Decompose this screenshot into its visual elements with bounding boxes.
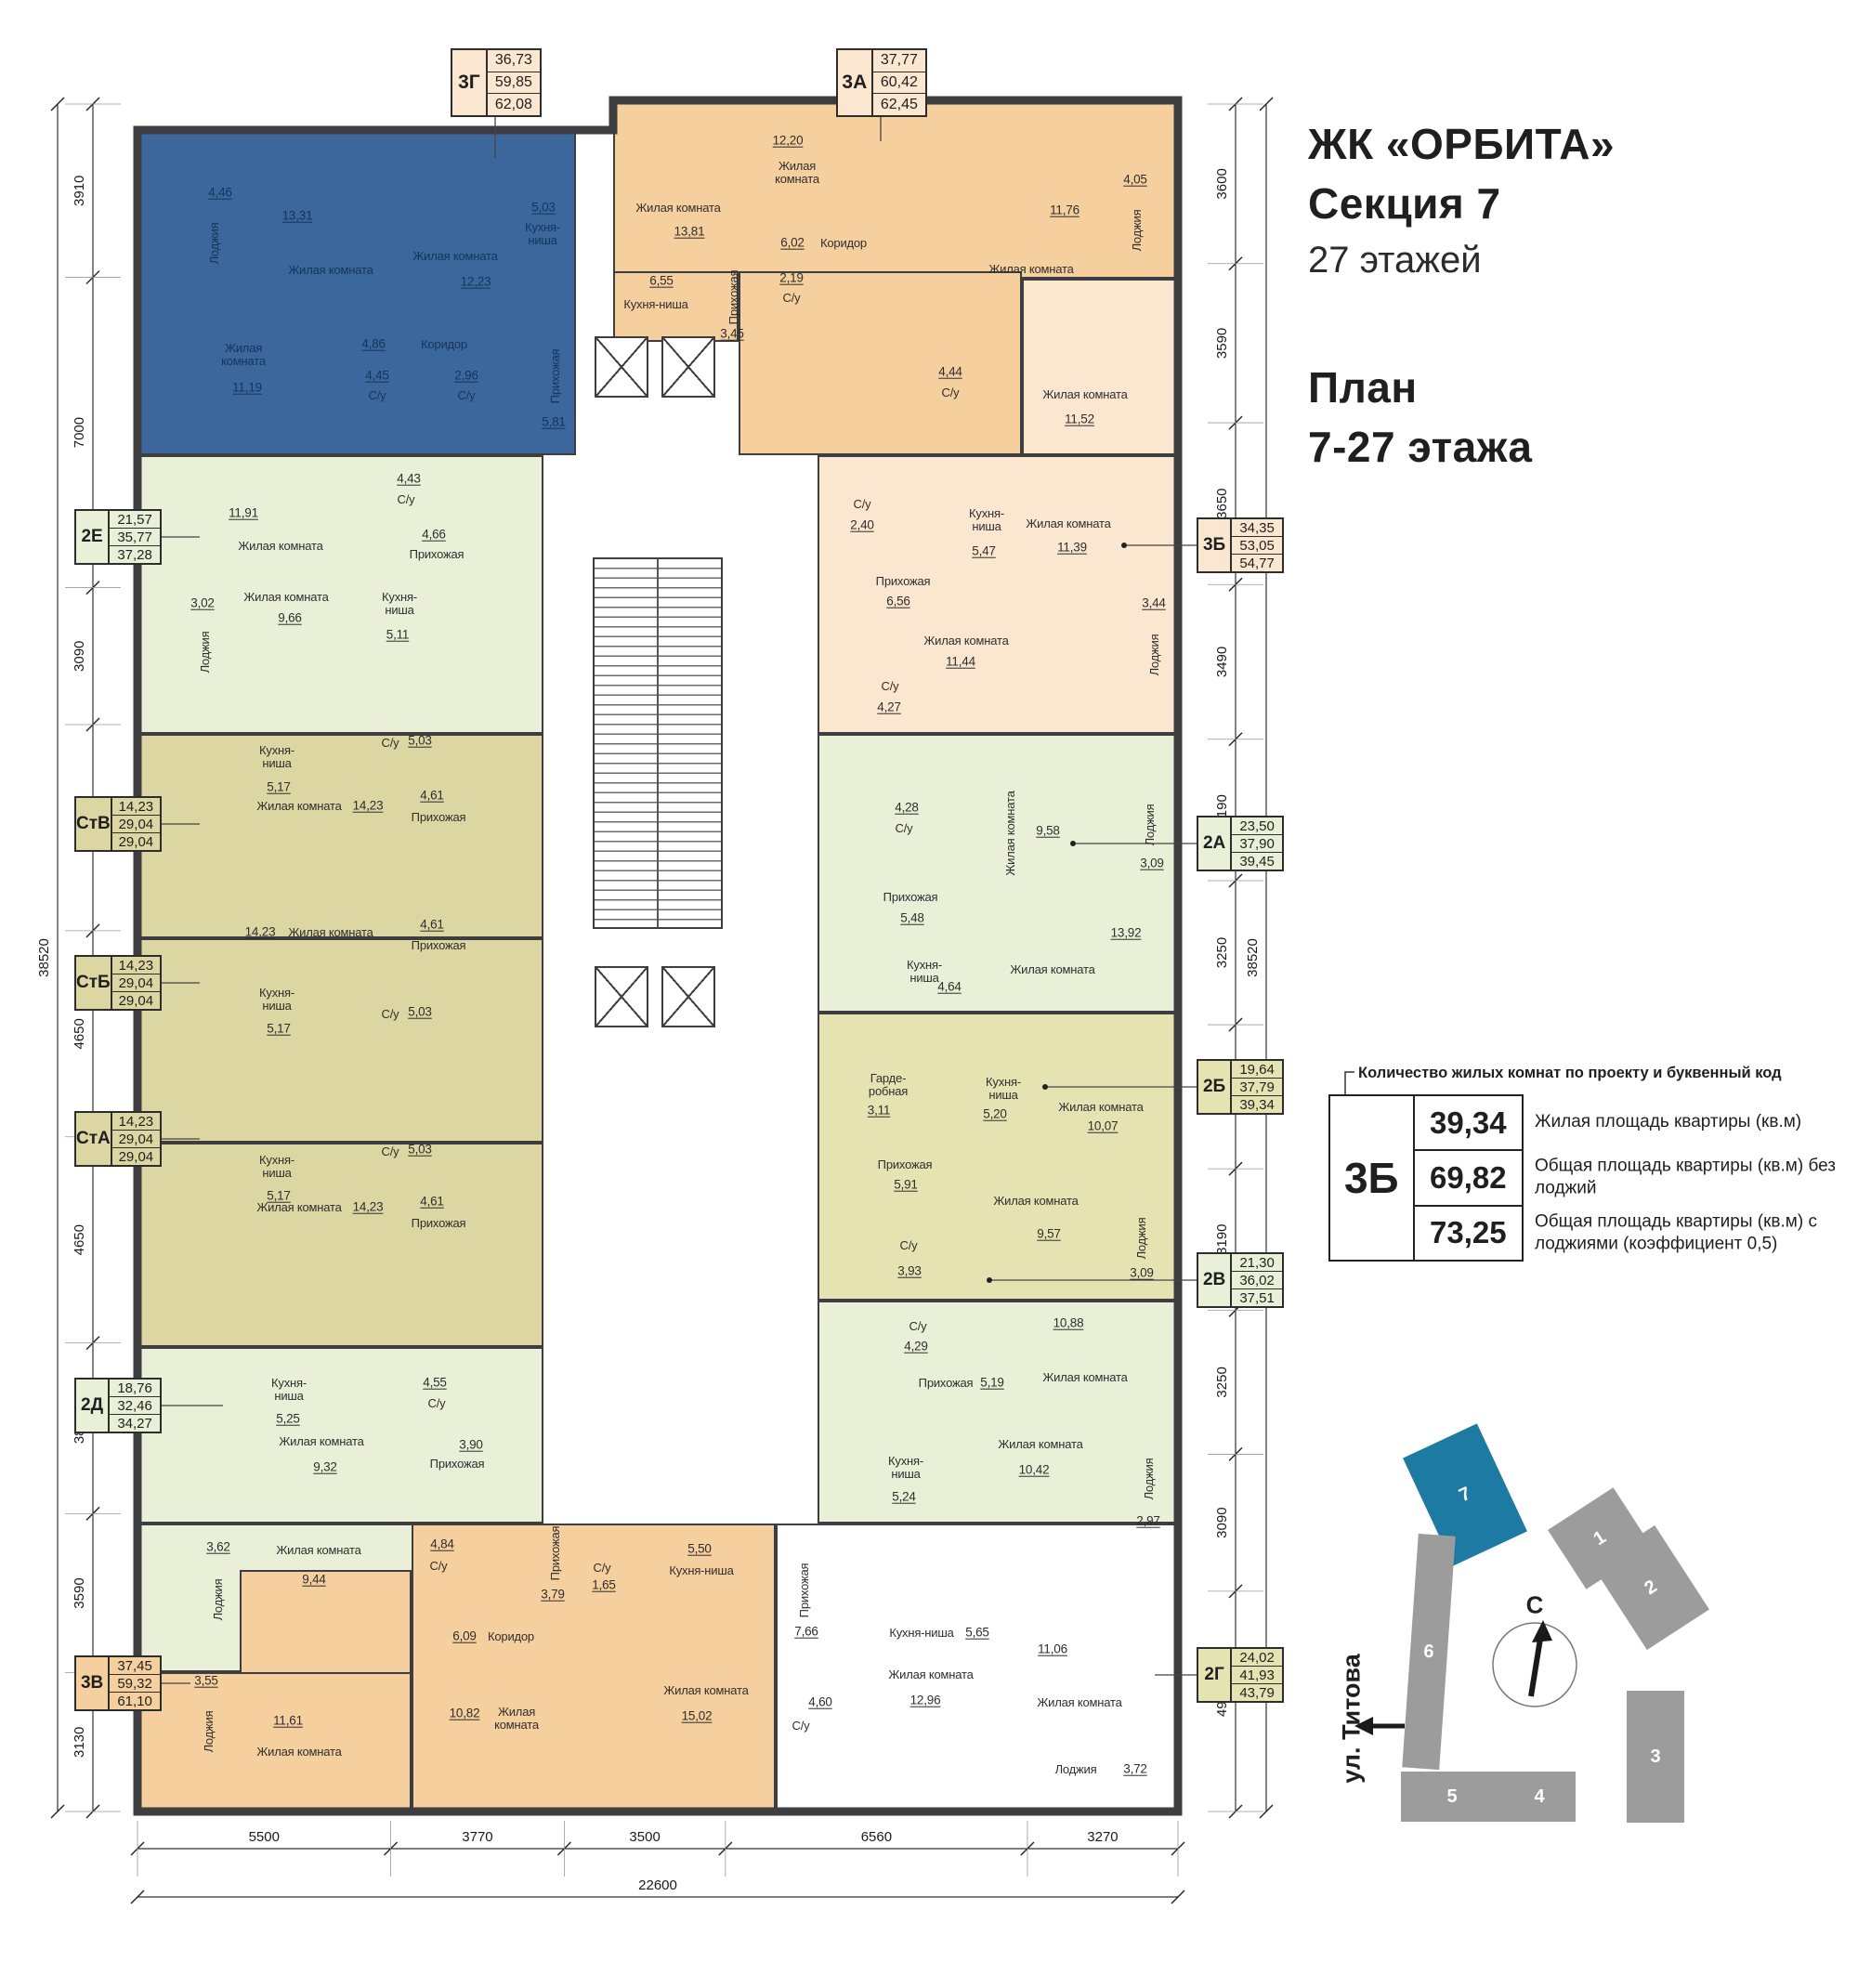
room-area-value: 2,19 xyxy=(779,272,803,286)
room-area-value: 4,05 xyxy=(1123,174,1146,188)
apartment-code: СтА xyxy=(76,1113,112,1165)
room-name-label: Жилая комната xyxy=(288,926,373,939)
room-area-value: 11,76 xyxy=(1050,204,1079,218)
apartment-area-value: 39,34 xyxy=(1232,1096,1282,1113)
apartment-area-value: 36,02 xyxy=(1232,1272,1282,1289)
room-name-label: Жилая комната xyxy=(998,1438,1082,1451)
apartment-3В-part3[interactable] xyxy=(137,1672,412,1811)
room-area-value: 9,66 xyxy=(278,612,301,626)
svg-text:6560: 6560 xyxy=(861,1829,892,1845)
apartment-area-value: 34,27 xyxy=(110,1415,160,1432)
room-name-label: Лоджия xyxy=(1131,210,1144,252)
elevator-shaft xyxy=(661,966,715,1027)
room-name-label: Прихожая xyxy=(549,1526,562,1581)
apartment-area-value: 37,28 xyxy=(110,546,160,563)
room-area-value: 3,72 xyxy=(1123,1763,1146,1777)
room-area-value: 5,17 xyxy=(267,1023,290,1037)
room-name-label: Гарде- робная xyxy=(857,1072,919,1098)
room-area-value: 3,09 xyxy=(1130,1267,1153,1281)
room-area-value: 4,29 xyxy=(904,1341,927,1354)
apartment-area-value: 23,50 xyxy=(1232,817,1282,835)
svg-text:3600: 3600 xyxy=(1214,168,1230,199)
room-area-value: 5,03 xyxy=(408,1006,431,1020)
legend-desc-total: Общая площадь квартиры (кв.м) без лоджий xyxy=(1535,1156,1851,1201)
svg-text:5500: 5500 xyxy=(249,1829,280,1845)
apartment-area-value: 34,35 xyxy=(1232,519,1282,537)
apartment-2Б[interactable] xyxy=(818,1013,1178,1301)
area-table-2Г[interactable]: 2Г24,0241,9343,79 xyxy=(1197,1647,1284,1703)
floors-subtitle: 27 этажей xyxy=(1308,240,1482,281)
room-name-label: Прихожая xyxy=(878,1158,933,1171)
apartment-СтА[interactable] xyxy=(137,1143,543,1347)
svg-text:7000: 7000 xyxy=(72,417,87,448)
apartment-area-value: 60,42 xyxy=(873,72,925,95)
svg-text:22600: 22600 xyxy=(638,1877,677,1893)
room-area-value: 13,81 xyxy=(674,226,705,240)
room-name-label: С/у xyxy=(369,389,386,402)
room-name-label: Жилая комната xyxy=(1042,1371,1127,1384)
room-name-label: Жилая комната xyxy=(1004,791,1017,875)
apartment-area-value: 29,04 xyxy=(112,992,160,1009)
room-area-value: 3,62 xyxy=(206,1541,229,1555)
room-area-value: 4,27 xyxy=(877,701,900,715)
apartment-area-value: 29,04 xyxy=(112,1148,160,1165)
room-name-label: С/у xyxy=(458,389,476,402)
apartment-code: 2Е xyxy=(76,511,110,563)
room-name-label: Жилая комната xyxy=(256,1201,341,1214)
room-area-value: 13,31 xyxy=(282,210,313,224)
apartment-area-value: 43,79 xyxy=(1232,1684,1282,1701)
apartment-area-value: 37,77 xyxy=(873,50,925,72)
room-name-label: Жилая комната xyxy=(480,1706,553,1732)
room-area-value: 4,60 xyxy=(808,1696,831,1710)
apartment-СтВ[interactable] xyxy=(137,734,543,938)
apartment-area-value: 21,30 xyxy=(1232,1254,1282,1272)
room-name-label: Кухня-ниша xyxy=(623,298,687,311)
legend-value-living: 39,34 xyxy=(1415,1096,1522,1151)
plan-range: 7-27 этажа xyxy=(1308,422,1533,472)
apartment-3Г[interactable] xyxy=(137,130,576,455)
room-name-label: Лоджия xyxy=(1135,1218,1148,1260)
apartment-2А[interactable] xyxy=(818,734,1178,1013)
room-area-value: 5,50 xyxy=(687,1543,711,1557)
room-name-label: Жилая комната xyxy=(288,264,373,277)
room-name-label: Жилая комната xyxy=(256,800,341,813)
room-area-value: 5,48 xyxy=(900,912,923,926)
staircase xyxy=(593,557,723,929)
room-area-value: 11,61 xyxy=(273,1715,303,1729)
svg-text:3270: 3270 xyxy=(1087,1829,1118,1845)
elevator-shaft xyxy=(595,966,648,1027)
room-name-label: Жилая комната xyxy=(1058,1101,1143,1114)
area-table-СтБ[interactable]: СтБ14,2329,0429,04 xyxy=(74,955,162,1011)
room-area-value: 14,23 xyxy=(353,800,384,814)
room-area-value: 3,79 xyxy=(541,1589,564,1602)
svg-text:3490: 3490 xyxy=(1214,647,1230,677)
room-area-value: 10,07 xyxy=(1088,1120,1119,1134)
room-area-value: 5,17 xyxy=(267,781,290,795)
apartment-area-value: 62,45 xyxy=(873,94,925,115)
room-name-label: Жилая комната xyxy=(238,540,322,553)
minimap-building-3: 3 xyxy=(1627,1691,1684,1823)
room-name-label: Коридор xyxy=(820,237,867,250)
room-name-label: С/у xyxy=(382,1008,399,1021)
room-area-value: 11,19 xyxy=(232,382,262,396)
apartment-area-value: 29,04 xyxy=(112,833,160,850)
apartment-code: 3А xyxy=(838,50,873,115)
apartment-area-value: 37,90 xyxy=(1232,835,1282,853)
room-area-value: 4,61 xyxy=(420,1196,443,1210)
apartment-code: 3Г xyxy=(452,50,488,115)
room-name-label: Прихожая xyxy=(430,1458,485,1471)
room-area-value: 5,19 xyxy=(980,1377,1003,1391)
room-area-value: 11,44 xyxy=(946,656,975,670)
room-area-value: 10,42 xyxy=(1019,1464,1050,1478)
apartment-area-value: 32,46 xyxy=(110,1397,160,1415)
room-name-label: Жилая комната xyxy=(1037,1696,1121,1709)
room-name-label: Жилая комната xyxy=(888,1668,973,1681)
room-name-label: Жилая комната xyxy=(764,160,831,186)
room-area-value: 2,40 xyxy=(850,519,873,533)
legend-note: Количество жилых комнат по проекту и бук… xyxy=(1358,1065,1782,1082)
room-area-value: 4,45 xyxy=(365,370,388,384)
room-name-label: Жилая комната xyxy=(276,1544,360,1557)
apartment-area-value: 37,45 xyxy=(110,1657,160,1675)
room-name-label: С/у xyxy=(882,680,899,693)
room-name-label: Кухня-ниша xyxy=(247,987,307,1013)
room-area-value: 6,09 xyxy=(452,1630,476,1644)
room-area-value: 12,20 xyxy=(773,135,804,149)
plan-word: План xyxy=(1308,362,1418,412)
apartment-code: 3Б xyxy=(1198,519,1232,571)
area-table-3А[interactable]: 3А37,7760,4262,45 xyxy=(836,48,927,117)
room-area-value: 2,96 xyxy=(454,370,478,384)
room-name-label: Лоджия xyxy=(203,1711,216,1753)
room-name-label: Коридор xyxy=(421,338,467,351)
room-name-label: Кухня-ниша xyxy=(669,1564,733,1577)
area-table-3В[interactable]: 3В37,4559,3261,10 xyxy=(74,1655,162,1711)
area-table-2В[interactable]: 2В21,3036,0237,51 xyxy=(1197,1252,1284,1308)
room-name-label: Прихожая xyxy=(549,349,562,404)
room-name-label: Кухня-ниша xyxy=(889,1627,953,1640)
room-name-label: Прихожая xyxy=(798,1563,811,1618)
room-area-value: 4,61 xyxy=(420,790,443,804)
room-name-label: Прихожая xyxy=(410,548,464,561)
room-area-value: 4,44 xyxy=(938,366,962,380)
svg-text:3090: 3090 xyxy=(1214,1507,1230,1537)
apartment-area-value: 36,73 xyxy=(488,50,540,72)
apartment-area-value: 54,77 xyxy=(1232,555,1282,571)
room-area-value: 6,02 xyxy=(780,237,804,251)
apartment-area-value: 59,32 xyxy=(110,1675,160,1693)
room-area-value: 5,81 xyxy=(542,416,565,430)
room-name-label: Прихожая xyxy=(876,575,931,588)
room-area-value: 12,23 xyxy=(461,276,491,290)
room-name-label: С/у xyxy=(896,822,913,835)
svg-text:3500: 3500 xyxy=(629,1829,660,1845)
area-table-2Б[interactable]: 2Б19,6437,7939,34 xyxy=(1197,1059,1284,1115)
elevator-shaft xyxy=(661,336,715,398)
room-name-label: С/у xyxy=(783,292,801,305)
north-letter: С xyxy=(1526,1591,1544,1620)
room-name-label: Прихожая xyxy=(727,270,740,325)
apartment-area-value: 14,23 xyxy=(112,798,160,816)
apartment-area-value: 59,85 xyxy=(488,72,540,95)
room-area-value: 10,82 xyxy=(450,1707,480,1721)
apartment-area-value: 29,04 xyxy=(112,974,160,992)
page-title: ЖК «ОРБИТА» xyxy=(1308,119,1615,169)
apartment-area-value: 37,51 xyxy=(1232,1289,1282,1306)
svg-text:3090: 3090 xyxy=(72,641,87,672)
room-area-value: 1,65 xyxy=(592,1579,615,1593)
room-area-value: 3,09 xyxy=(1140,857,1163,871)
room-area-value: 5,20 xyxy=(983,1108,1006,1122)
room-area-value: 11,06 xyxy=(1038,1643,1067,1657)
legend-code: 3Б xyxy=(1330,1096,1415,1260)
apartment-3А-part3[interactable] xyxy=(739,271,1022,455)
legend-value-total: 69,82 xyxy=(1415,1151,1522,1206)
room-area-value: 11,91 xyxy=(229,507,258,521)
room-area-value: 4,64 xyxy=(937,981,961,995)
room-name-label: Лоджия xyxy=(212,1579,225,1621)
apartment-area-value: 41,93 xyxy=(1232,1667,1282,1684)
room-area-value: 5,24 xyxy=(892,1491,915,1505)
apartment-code: 2А xyxy=(1198,817,1232,870)
area-table-СтВ[interactable]: СтВ14,2329,0429,04 xyxy=(74,796,162,852)
room-area-value: 6,55 xyxy=(649,275,673,289)
room-name-label: С/у xyxy=(854,498,871,511)
room-area-value: 3,55 xyxy=(194,1675,217,1689)
room-name-label: Жилая комната xyxy=(1042,388,1127,401)
room-area-value: 13,92 xyxy=(1111,927,1142,941)
area-table-СтА[interactable]: СтА14,2329,0429,04 xyxy=(74,1111,162,1167)
area-table-2А[interactable]: 2А23,5037,9039,45 xyxy=(1197,816,1284,871)
apartment-area-value: 24,02 xyxy=(1232,1649,1282,1667)
room-name-label: Лоджия xyxy=(1148,634,1161,676)
room-area-value: 3,45 xyxy=(720,328,743,342)
legend-desc-living: Жилая площадь квартиры (кв.м) xyxy=(1535,1111,1851,1133)
room-area-value: 5,03 xyxy=(408,735,431,749)
room-area-value: 4,43 xyxy=(397,473,420,487)
apartment-area-value: 14,23 xyxy=(112,1113,160,1131)
apartment-area-value: 35,77 xyxy=(110,529,160,546)
room-name-label: Прихожая xyxy=(412,939,466,952)
room-name-label: Кухня-ниша xyxy=(957,507,1016,533)
area-table-2Д[interactable]: 2Д18,7632,4634,27 xyxy=(74,1378,162,1433)
room-area-value: 4,28 xyxy=(895,802,918,816)
room-area-value: 4,61 xyxy=(420,919,443,933)
apartment-2Г[interactable] xyxy=(776,1524,1178,1811)
apartment-area-value: 18,76 xyxy=(110,1380,160,1397)
room-area-value: 4,55 xyxy=(423,1377,446,1391)
apartment-code: СтБ xyxy=(76,957,112,1009)
apartment-code: 2Д xyxy=(76,1380,110,1432)
apartment-area-value: 29,04 xyxy=(112,816,160,833)
room-area-value: 6,56 xyxy=(886,595,909,609)
apartment-area-value: 37,79 xyxy=(1232,1079,1282,1096)
room-name-label: С/у xyxy=(398,493,415,506)
svg-text:38520: 38520 xyxy=(36,938,52,977)
apartment-area-value: 29,04 xyxy=(112,1131,160,1148)
room-area-value: 4,84 xyxy=(430,1538,453,1552)
room-area-value: 14,23 xyxy=(245,926,276,940)
room-area-value: 5,03 xyxy=(408,1144,431,1157)
room-name-label: Жилая комната xyxy=(923,634,1008,647)
room-name-label: С/у xyxy=(382,1145,399,1158)
room-name-label: Жилая комната xyxy=(993,1195,1078,1208)
room-area-value: 9,58 xyxy=(1036,825,1059,839)
room-name-label: Жилая комната xyxy=(663,1684,748,1697)
room-name-label: Лоджия xyxy=(1143,1458,1156,1500)
room-name-label: Жилая комната xyxy=(279,1435,363,1448)
apartment-3А-part1[interactable] xyxy=(613,100,1178,279)
room-name-label: Жилая комната xyxy=(1010,963,1094,976)
svg-text:3250: 3250 xyxy=(1214,937,1230,968)
room-name-label: Лоджия xyxy=(199,632,212,674)
room-area-value: 4,66 xyxy=(422,529,445,543)
room-name-label: Лоджия xyxy=(1055,1763,1097,1776)
apartment-area-value: 14,23 xyxy=(112,957,160,974)
apartment-СтБ[interactable] xyxy=(137,938,543,1143)
apartment-2Е[interactable] xyxy=(137,455,543,734)
svg-text:4650: 4650 xyxy=(72,1224,87,1255)
room-name-label: Кухня-ниша xyxy=(259,1377,319,1403)
room-area-value: 3,44 xyxy=(1142,597,1165,611)
room-name-label: Жилая комната xyxy=(1026,517,1110,530)
room-area-value: 3,02 xyxy=(190,597,214,611)
room-area-value: 5,47 xyxy=(972,545,995,559)
area-table-3Б[interactable]: 3Б34,3553,0554,77 xyxy=(1197,517,1284,573)
room-name-label: Коридор xyxy=(488,1630,534,1643)
room-area-value: 14,23 xyxy=(353,1201,384,1215)
room-name-label: Кухня-ниша xyxy=(974,1076,1033,1102)
apartment-3Б-part1[interactable] xyxy=(1022,279,1178,455)
room-name-label: Жилая комната xyxy=(988,263,1073,276)
room-area-value: 9,32 xyxy=(313,1461,336,1475)
room-name-label: Прихожая xyxy=(412,811,466,824)
svg-text:38520: 38520 xyxy=(1245,938,1261,977)
minimap-building-5: 5 xyxy=(1401,1772,1503,1822)
floor-plan-page: ЖК «ОРБИТА» Секция 7 27 этажей План 7-27… xyxy=(0,0,1858,1988)
room-name-label: Кухня-ниша xyxy=(247,744,307,770)
minimap-building-4: 4 xyxy=(1503,1772,1576,1822)
apartment-area-value: 19,64 xyxy=(1232,1061,1282,1079)
apartment-area-value: 21,57 xyxy=(110,511,160,529)
apartment-area-value: 39,45 xyxy=(1232,853,1282,870)
apartment-code: 2Б xyxy=(1198,1061,1232,1113)
room-name-label: Кухня-ниша xyxy=(370,591,429,617)
area-table-3Г[interactable]: 3Г36,7359,8562,08 xyxy=(451,48,542,117)
apartment-area-value: 53,05 xyxy=(1232,537,1282,555)
apartment-3Б-part2[interactable] xyxy=(818,455,1178,734)
section-title: Секция 7 xyxy=(1308,178,1501,229)
room-area-value: 4,46 xyxy=(208,187,231,201)
svg-text:3190: 3190 xyxy=(1214,1224,1230,1255)
svg-text:3130: 3130 xyxy=(72,1727,87,1758)
minimap-building-6: 6 xyxy=(1402,1534,1455,1770)
svg-text:3910: 3910 xyxy=(72,176,87,206)
svg-text:3770: 3770 xyxy=(462,1829,492,1845)
room-name-label: Жилая комната xyxy=(243,591,328,604)
apartment-code: 2Г xyxy=(1198,1649,1232,1701)
apartment-code: 2В xyxy=(1198,1254,1232,1306)
room-area-value: 5,91 xyxy=(894,1179,917,1193)
room-name-label: Прихожая xyxy=(919,1377,974,1390)
room-name-label: С/у xyxy=(594,1562,611,1575)
svg-text:3650: 3650 xyxy=(1214,488,1230,518)
room-name-label: Прихожая xyxy=(883,891,938,904)
room-name-label: Жилая комната xyxy=(412,250,497,263)
elevator-shaft xyxy=(595,336,648,398)
apartment-area-value: 62,08 xyxy=(488,94,540,115)
room-name-label: С/у xyxy=(909,1320,927,1333)
room-name-label: Кухня-ниша xyxy=(876,1455,936,1481)
room-area-value: 4,86 xyxy=(361,338,385,352)
area-table-2Е[interactable]: 2Е21,5735,7737,28 xyxy=(74,509,162,565)
apartment-2В[interactable] xyxy=(818,1301,1178,1524)
room-area-value: 5,03 xyxy=(531,202,555,216)
legend-value-total-loggia: 73,25 xyxy=(1415,1207,1522,1260)
room-area-value: 9,44 xyxy=(302,1574,325,1588)
svg-text:3590: 3590 xyxy=(72,1577,87,1608)
room-name-label: С/у xyxy=(792,1720,810,1733)
room-area-value: 12,96 xyxy=(910,1694,941,1708)
svg-text:3590: 3590 xyxy=(1214,328,1230,359)
room-area-value: 11,52 xyxy=(1065,413,1094,427)
room-area-value: 3,90 xyxy=(459,1439,482,1453)
svg-text:3250: 3250 xyxy=(1214,1367,1230,1397)
room-name-label: С/у xyxy=(430,1560,448,1573)
room-name-label: Жилая комната xyxy=(209,342,278,368)
room-area-value: 15,02 xyxy=(682,1710,713,1724)
room-area-value: 11,39 xyxy=(1057,542,1087,556)
room-name-label: С/у xyxy=(942,386,960,399)
room-area-value: 10,88 xyxy=(1053,1317,1084,1331)
room-area-value: 5,25 xyxy=(276,1413,299,1427)
svg-text:4650: 4650 xyxy=(72,1018,87,1049)
room-name-label: Кухня-ниша xyxy=(515,221,570,247)
room-area-value: 7,66 xyxy=(794,1626,818,1640)
room-name-label: Лоджия xyxy=(208,223,221,265)
room-name-label: С/у xyxy=(900,1239,918,1252)
apartment-area-value: 61,10 xyxy=(110,1693,160,1709)
room-area-value: 3,11 xyxy=(868,1105,890,1118)
street-label: ул. Титова xyxy=(1338,1654,1367,1784)
room-area-value: 5,65 xyxy=(965,1627,988,1641)
room-area-value: 3,93 xyxy=(897,1265,921,1279)
room-name-label: Прихожая xyxy=(412,1217,466,1230)
room-area-value: 9,57 xyxy=(1037,1228,1060,1242)
apartment-code: 3В xyxy=(76,1657,110,1709)
room-name-label: Лоджия xyxy=(1144,804,1157,846)
room-name-label: Жилая комната xyxy=(256,1746,341,1759)
room-name-label: Кухня-ниша xyxy=(247,1154,307,1180)
room-name-label: С/у xyxy=(382,737,399,750)
room-area-value: 2,97 xyxy=(1136,1515,1159,1529)
room-name-label: Жилая комната xyxy=(635,202,720,215)
apartment-code: СтВ xyxy=(76,798,112,850)
room-area-value: 5,11 xyxy=(386,629,409,643)
legend-sample-table: 3Б 39,34 69,82 73,25 xyxy=(1328,1094,1524,1262)
legend-desc-total-loggia: Общая площадь квартиры (кв.м) с лоджиями… xyxy=(1535,1211,1851,1257)
room-name-label: С/у xyxy=(428,1397,446,1410)
